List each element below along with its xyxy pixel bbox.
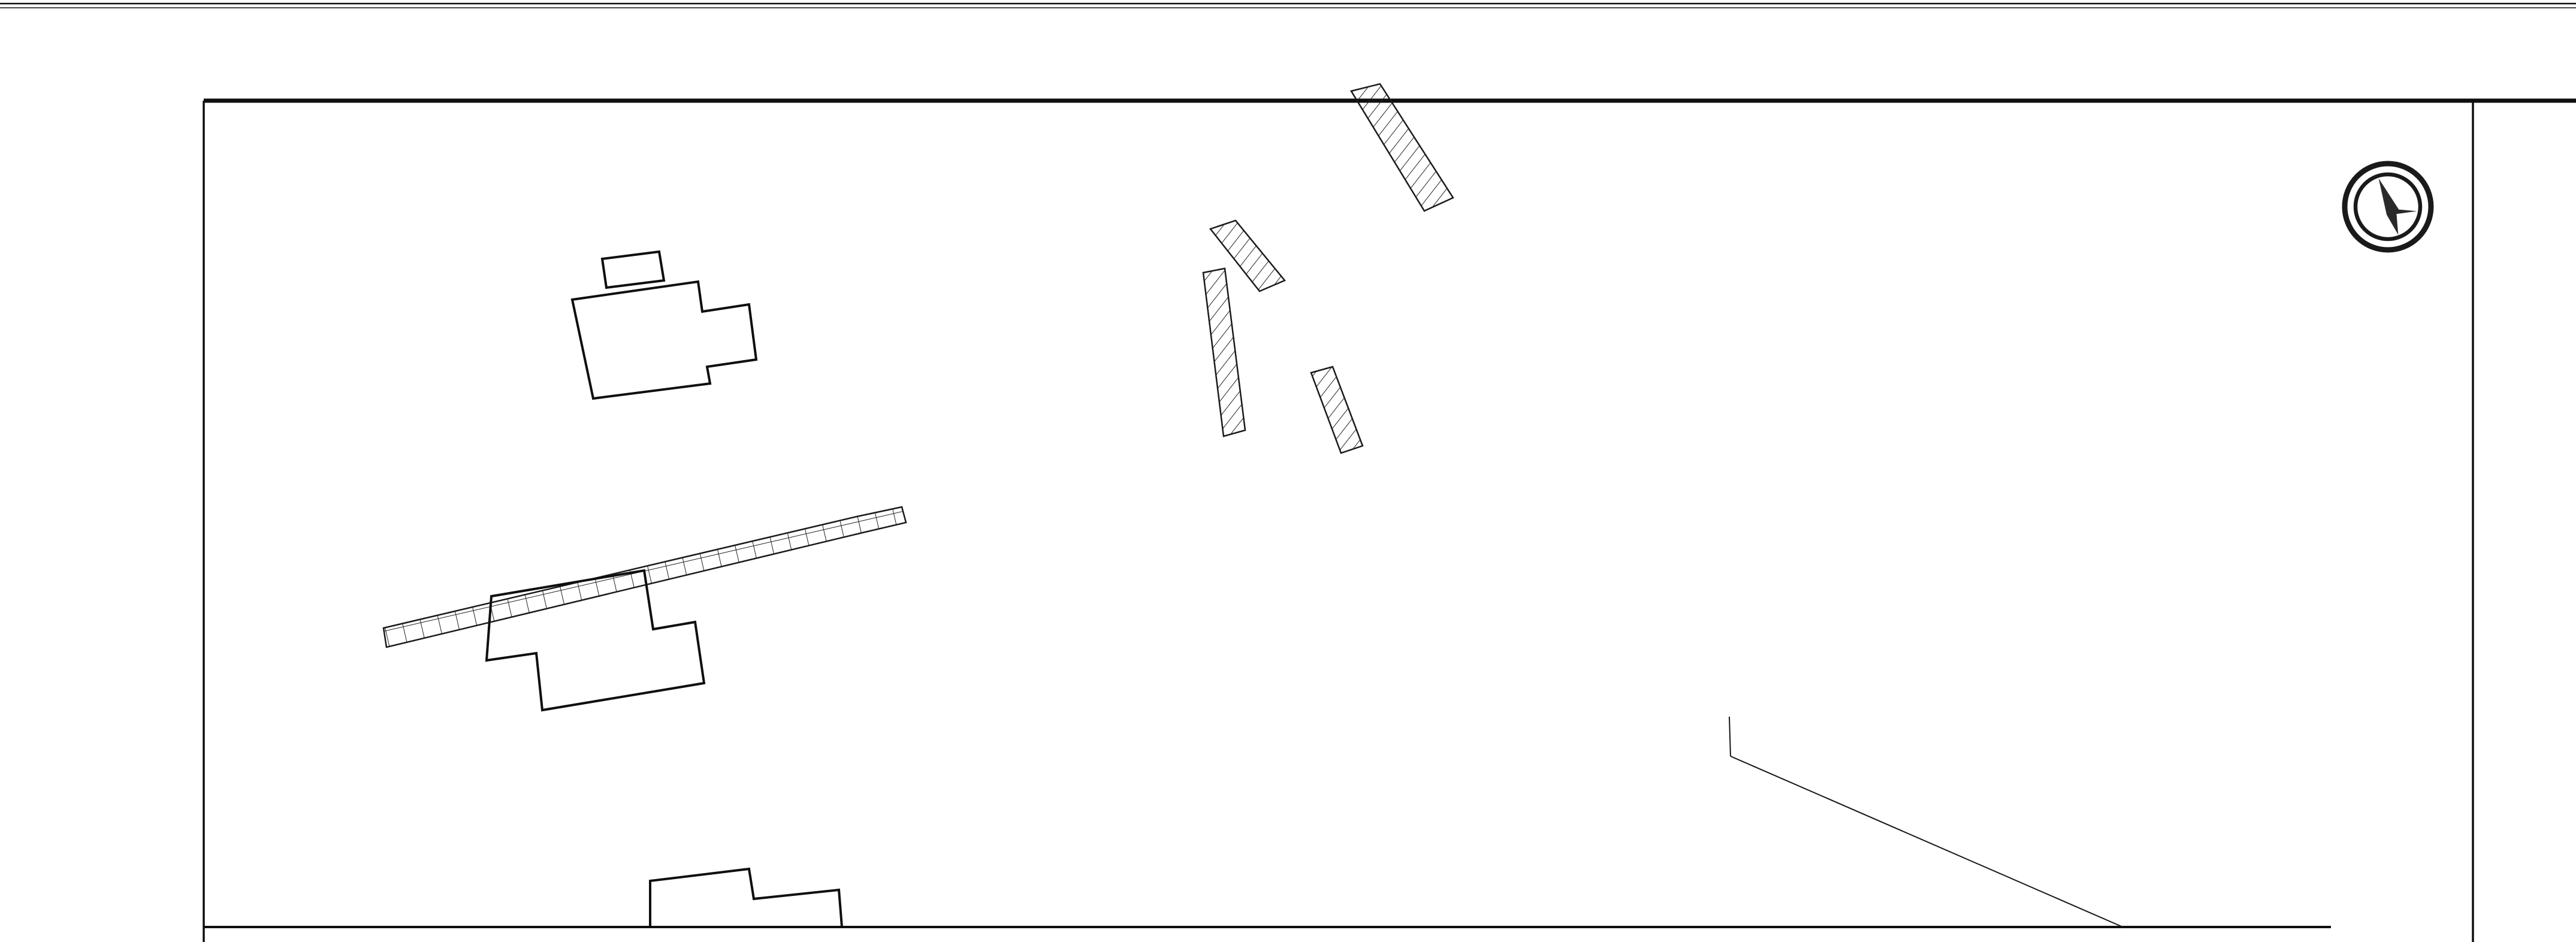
tunnel-annotation [1729, 717, 2124, 928]
top-rules [0, 4, 2576, 8]
road-register-map-sheet [0, 0, 2576, 942]
map-frame [204, 101, 2576, 942]
buildings [487, 252, 842, 927]
rock-hatch-bands [1203, 84, 1453, 453]
north-arrow-icon [2345, 164, 2431, 250]
